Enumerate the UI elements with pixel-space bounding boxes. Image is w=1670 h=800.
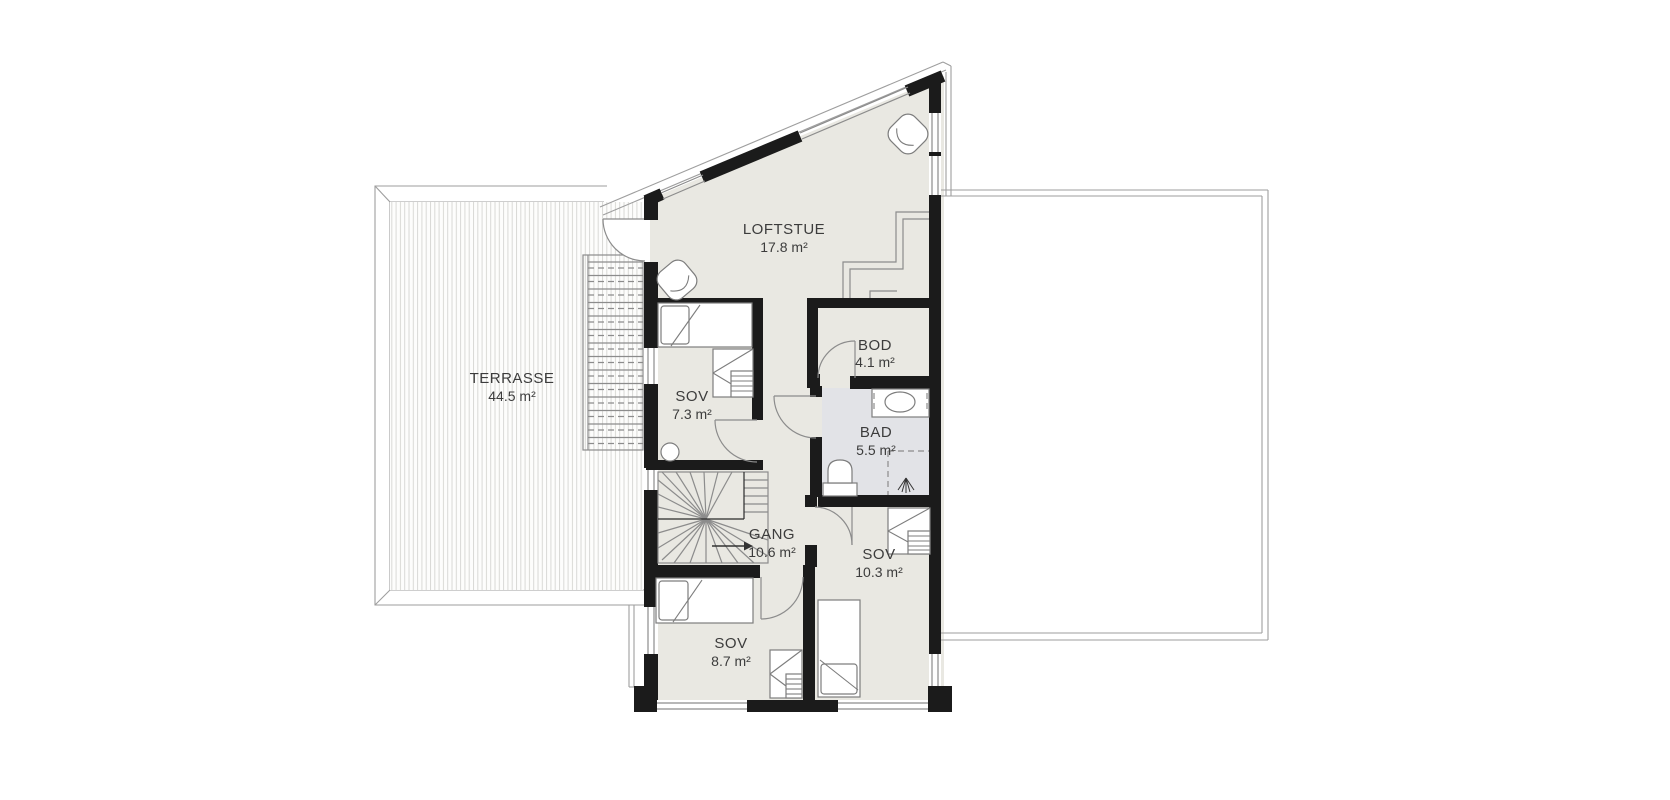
window [644,348,658,384]
bed-icon [656,578,753,623]
wardrobe-icon [770,650,802,698]
room-name: SOV [862,546,895,563]
terrace-area [375,186,645,687]
window [929,654,941,686]
window [838,700,928,712]
room-area: 4.1 m² [855,354,895,370]
room-name: GANG [749,526,795,543]
room-name: LOFTSTUE [743,221,825,238]
room-area: 10.3 m² [855,564,903,580]
room-area: 10.6 m² [748,544,796,560]
room-area: 5.5 m² [856,442,896,458]
room-name: TERRASSE [470,370,555,387]
wardrobe-icon [713,349,753,397]
floor-plan: TERRASSE 44.5 m² LOFTSTUE 17.8 m² SOV 7.… [0,0,1670,800]
window [929,113,941,195]
bed-icon [658,303,752,347]
floor-plan-svg: TERRASSE 44.5 m² LOFTSTUE 17.8 m² SOV 7.… [0,0,1670,800]
room-label-bod: BOD 4.1 m² [855,337,895,370]
room-name: SOV [675,388,708,405]
bed-icon [818,600,860,697]
stool-icon [661,443,679,461]
room-area: 17.8 m² [760,239,808,255]
room-area: 44.5 m² [488,388,536,404]
room-area: 7.3 m² [672,406,712,422]
room-name: BOD [858,337,892,354]
garage-outline [941,190,1268,640]
room-area: 8.7 m² [711,653,751,669]
window [657,700,747,712]
room-name: BAD [860,424,892,441]
window [644,468,658,490]
sink-icon [872,389,929,417]
lower-level-outline [629,605,645,687]
room-name: SOV [714,635,747,652]
